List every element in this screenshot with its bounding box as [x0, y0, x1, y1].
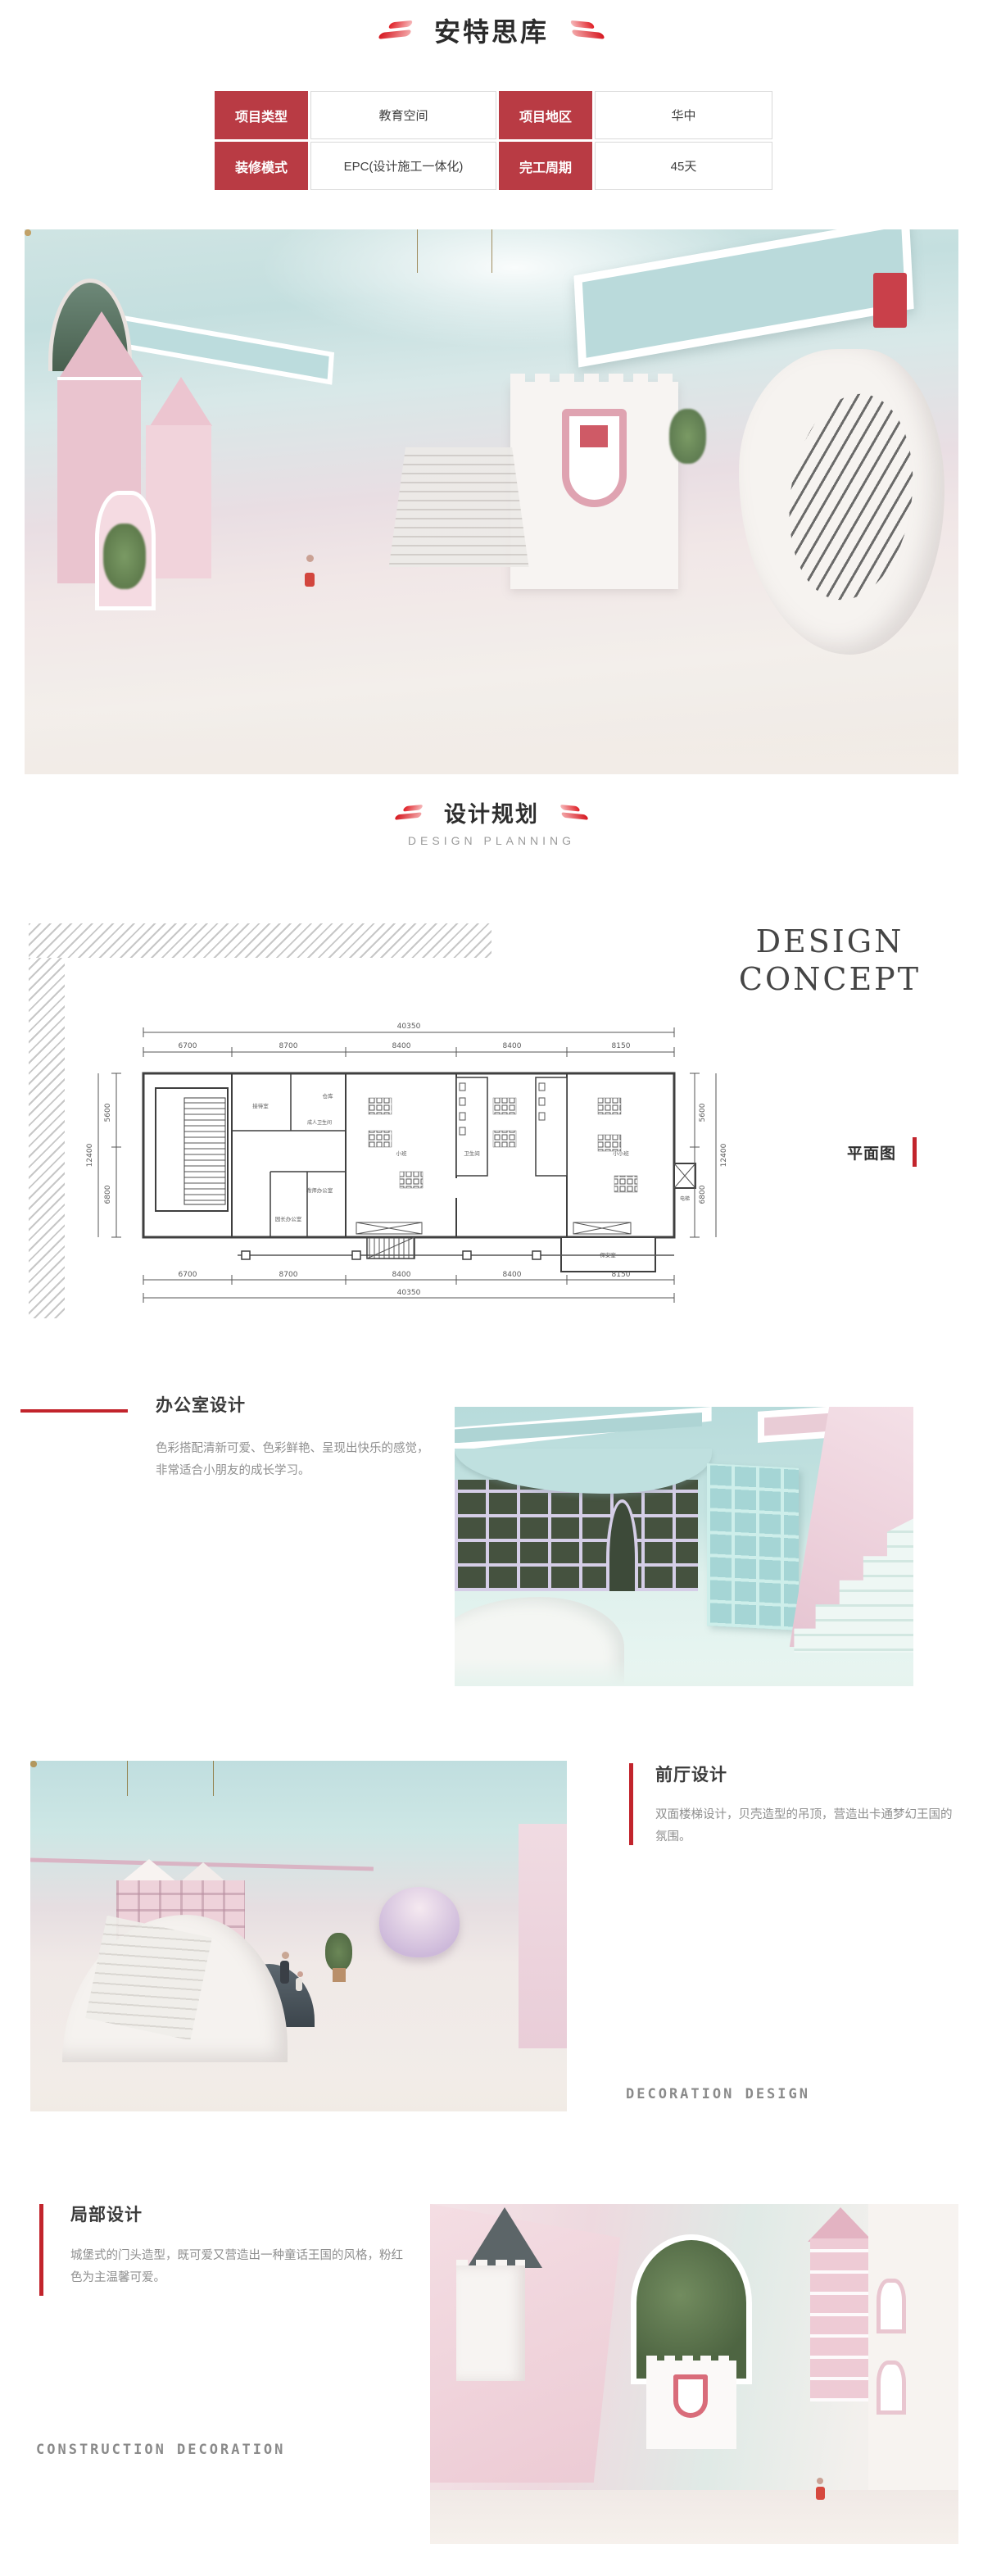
brand-title: 安特思库	[434, 11, 549, 49]
hero-floor	[25, 709, 958, 774]
lobby-caption: DECORATION DESIGN	[626, 2086, 810, 2102]
dim-top-4: 8400	[503, 1042, 522, 1050]
red-equals-icon	[396, 804, 424, 821]
lobby-pink-wall	[519, 1824, 567, 2048]
lobby-playhouse-roof-2	[180, 1862, 226, 1882]
hero-grand-staircase	[389, 447, 529, 567]
dim-total-top: 40350	[397, 1023, 421, 1031]
dim-top-1: 6700	[179, 1042, 197, 1050]
hero-red-sign	[873, 273, 907, 328]
dim-bottom-5: 8150	[612, 1271, 631, 1279]
lobby-chandelier-wire	[127, 1761, 128, 1796]
room-label-toddler-class: 小小班	[613, 1150, 629, 1157]
lobby-section-title: 前厅设计	[655, 1762, 727, 1786]
info-label-project-type: 项目类型	[215, 91, 308, 139]
lobby-floor	[30, 2076, 567, 2111]
lobby-playhouse-roof	[121, 1859, 177, 1882]
partial-dark-cone-roof	[467, 2207, 542, 2268]
hero-plants-2	[669, 409, 707, 464]
plan-label: 平面图	[847, 1141, 896, 1163]
red-bar-icon	[39, 2204, 43, 2296]
lobby-plant	[325, 1933, 352, 1971]
info-value-project-type: 教育空间	[310, 91, 496, 139]
partial-photo	[430, 2204, 958, 2544]
info-label-completion-period: 完工周期	[499, 142, 592, 190]
lobby-child-figure	[296, 1978, 302, 1991]
dim-left-total: 12400	[86, 1143, 94, 1167]
partial-section-title: 局部设计	[70, 2202, 143, 2226]
dim-total-bottom: 40350	[397, 1289, 421, 1297]
planning-section-header: 设计规划 DESIGN PLANNING	[0, 796, 983, 847]
hero-shield-band	[580, 425, 608, 447]
red-bar-icon	[913, 1137, 917, 1167]
room-label-storage: 仓库	[323, 1092, 334, 1100]
red-equals-icon	[560, 804, 587, 821]
info-value-completion-period: 45天	[595, 142, 772, 190]
partial-arch-window-1	[877, 2279, 905, 2333]
info-label-project-region: 项目地区	[499, 91, 592, 139]
partial-arch-window-2	[877, 2361, 905, 2415]
hero-plants	[103, 524, 146, 589]
red-bar-icon	[629, 1763, 633, 1845]
room-label-adult-wc: 成人卫生间	[307, 1119, 332, 1126]
red-rule-icon	[20, 1409, 128, 1413]
room-label-teacher-office: 教师办公室	[306, 1186, 333, 1194]
dim-right-2: 6800	[699, 1185, 707, 1204]
dim-bottom-1: 6700	[179, 1271, 197, 1279]
hero-pink-tower-roof	[60, 311, 143, 377]
partial-caption: CONSTRUCTION DECORATION	[36, 2442, 285, 2458]
dim-bottom-3: 8400	[392, 1271, 411, 1279]
room-label-wc: 卫生间	[464, 1150, 480, 1157]
office-section-title: 办公室设计	[156, 1392, 246, 1417]
lobby-section-body: 双面楼梯设计，贝壳造型的吊顶，营造出卡通梦幻王国的氛围。	[655, 1804, 960, 1848]
hero-chandelier-wire	[417, 229, 418, 273]
plan-label-row: 平面图	[847, 1137, 917, 1167]
red-equals-icon	[570, 20, 603, 41]
design-concept-line2: CONCEPT	[719, 960, 940, 998]
hatch-band-left	[29, 958, 65, 1318]
partial-section-body: 城堡式的门头造型，既可爱又营造出一种童话王国的风格，粉红色为主温馨可爱。	[70, 2245, 405, 2289]
dim-left-1: 5600	[104, 1103, 112, 1122]
partial-floor	[430, 2490, 958, 2544]
lobby-child-figure-head	[297, 1971, 303, 1977]
info-value-decoration-mode: EPC(设计施工一体化)	[310, 142, 496, 190]
dim-right-total: 12400	[720, 1143, 728, 1167]
hero-child-figure	[306, 555, 314, 562]
lobby-photo	[30, 1761, 567, 2111]
room-label-security: 保安室	[600, 1251, 616, 1259]
hero-shield-niche	[562, 409, 627, 507]
brand-header: 安特思库	[0, 11, 983, 49]
plan-stairwell	[184, 1098, 225, 1204]
dim-right-1: 5600	[699, 1103, 707, 1122]
design-concept-heading: DESIGN CONCEPT	[719, 923, 940, 999]
partial-white-tower	[456, 2265, 525, 2381]
dim-top-2: 8700	[279, 1042, 298, 1050]
hero-photo	[25, 229, 958, 774]
partial-right-wall	[868, 2204, 958, 2503]
dim-top-5: 8150	[612, 1042, 631, 1050]
office-photo	[455, 1407, 913, 1686]
hatch-band-top	[29, 923, 491, 958]
partial-pink-cone-roof	[808, 2207, 873, 2242]
room-label-junior-class: 小班	[396, 1150, 408, 1157]
dim-left-2: 6800	[104, 1185, 112, 1204]
lobby-shell-pendant	[379, 1887, 460, 1957]
lobby-adult-figure	[280, 1961, 289, 1984]
dim-top-3: 8400	[392, 1042, 411, 1050]
lobby-chandelier-wire	[213, 1761, 214, 1796]
office-section-body: 色彩搭配清新可爱、色彩鲜艳、呈现出快乐的感觉，非常适合小朋友的成长学习。	[156, 1438, 430, 1482]
lobby-plant-pot	[333, 1968, 346, 1982]
hero-pink-tower-roof-2	[150, 377, 212, 426]
red-equals-icon	[380, 20, 413, 41]
room-label-principal-office: 园长办公室	[275, 1215, 302, 1222]
office-grid-window	[455, 1480, 698, 1591]
dim-bottom-2: 8700	[279, 1271, 298, 1279]
room-label-reception: 接待室	[252, 1102, 269, 1109]
info-value-project-region: 华中	[595, 91, 772, 139]
partial-shield-emblem	[673, 2374, 708, 2419]
office-floor	[455, 1658, 913, 1686]
info-label-decoration-mode: 装修模式	[215, 142, 308, 190]
hero-chandelier-wire	[491, 229, 492, 273]
partial-pink-tower	[810, 2238, 868, 2401]
project-info-table: 项目类型 教育空间 项目地区 华中 装修模式 EPC(设计施工一体化) 完工周期…	[215, 91, 770, 190]
page: 安特思库 项目类型 教育空间 项目地区 华中 装修模式 EPC(设计施工一体化)…	[0, 0, 983, 2576]
hero-pink-tower-2	[146, 425, 211, 578]
design-concept-line1: DESIGN	[719, 923, 940, 960]
floor-plan-drawing: 40350 6700 8700 8400 8400 8150	[74, 1016, 737, 1327]
planning-title: 设计规划	[444, 796, 539, 828]
room-label-elevator: 电梯	[680, 1195, 690, 1202]
office-cubby-shelf	[707, 1463, 799, 1630]
dim-bottom-4: 8400	[503, 1271, 522, 1279]
hero-child-figure-body	[305, 573, 315, 587]
planning-subtitle: DESIGN PLANNING	[408, 834, 575, 847]
lobby-adult-figure-head	[282, 1952, 289, 1959]
hero-castle-crenellation	[510, 374, 678, 388]
lobby-stair-steps	[85, 1916, 212, 2041]
partial-child-figure	[816, 2487, 825, 2500]
